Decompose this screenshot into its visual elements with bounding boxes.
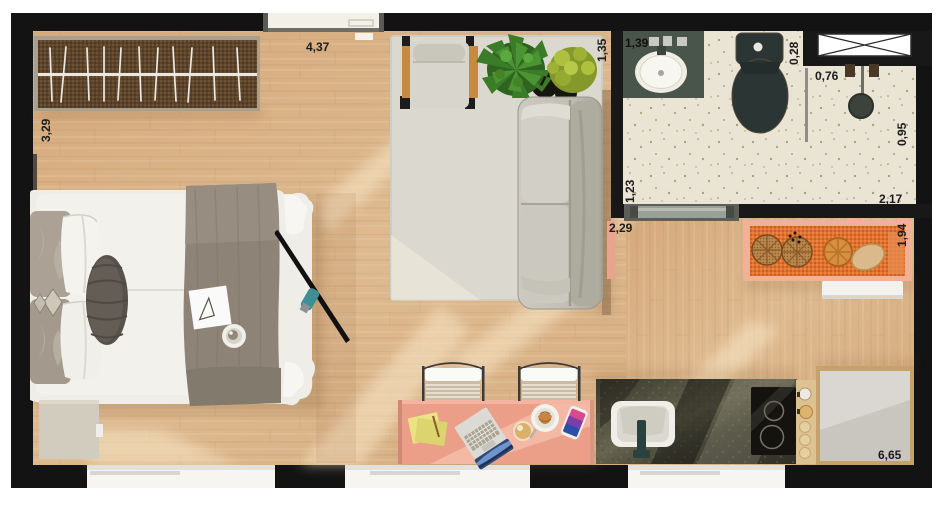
svg-text:1,35: 1,35 [595,38,609,62]
svg-text:4,37: 4,37 [306,40,330,54]
svg-text:1,39: 1,39 [625,36,649,50]
svg-text:0,95: 0,95 [895,122,909,146]
svg-text:1,94: 1,94 [895,223,909,247]
svg-text:3,29: 3,29 [39,118,53,142]
svg-text:6,65: 6,65 [878,448,902,462]
svg-text:0,76: 0,76 [815,69,839,83]
svg-text:2,17: 2,17 [879,192,903,206]
svg-text:0,28: 0,28 [787,41,801,65]
svg-text:2,29: 2,29 [609,221,633,235]
svg-text:1,23: 1,23 [623,179,637,203]
